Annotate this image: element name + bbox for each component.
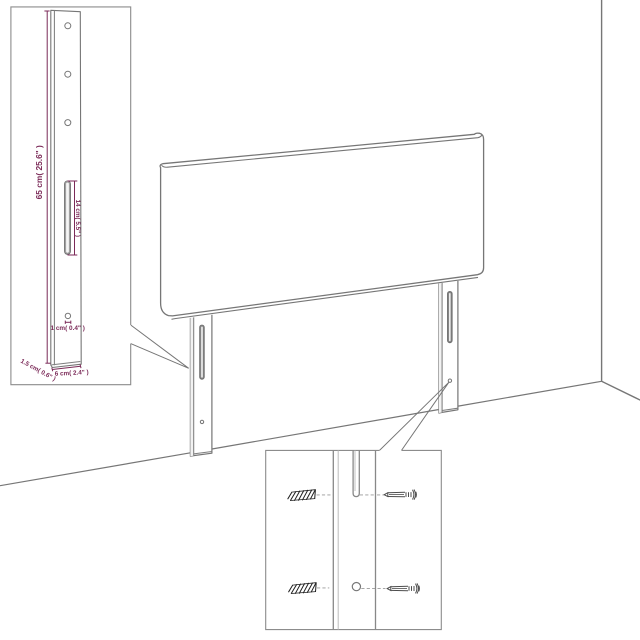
svg-text:65 cm( 25.6" ): 65 cm( 25.6" ) (34, 145, 44, 199)
svg-text:14 cm( 5.5" ): 14 cm( 5.5" ) (74, 200, 81, 237)
svg-text:1 cm( 0.4" ): 1 cm( 0.4" ) (51, 325, 85, 332)
